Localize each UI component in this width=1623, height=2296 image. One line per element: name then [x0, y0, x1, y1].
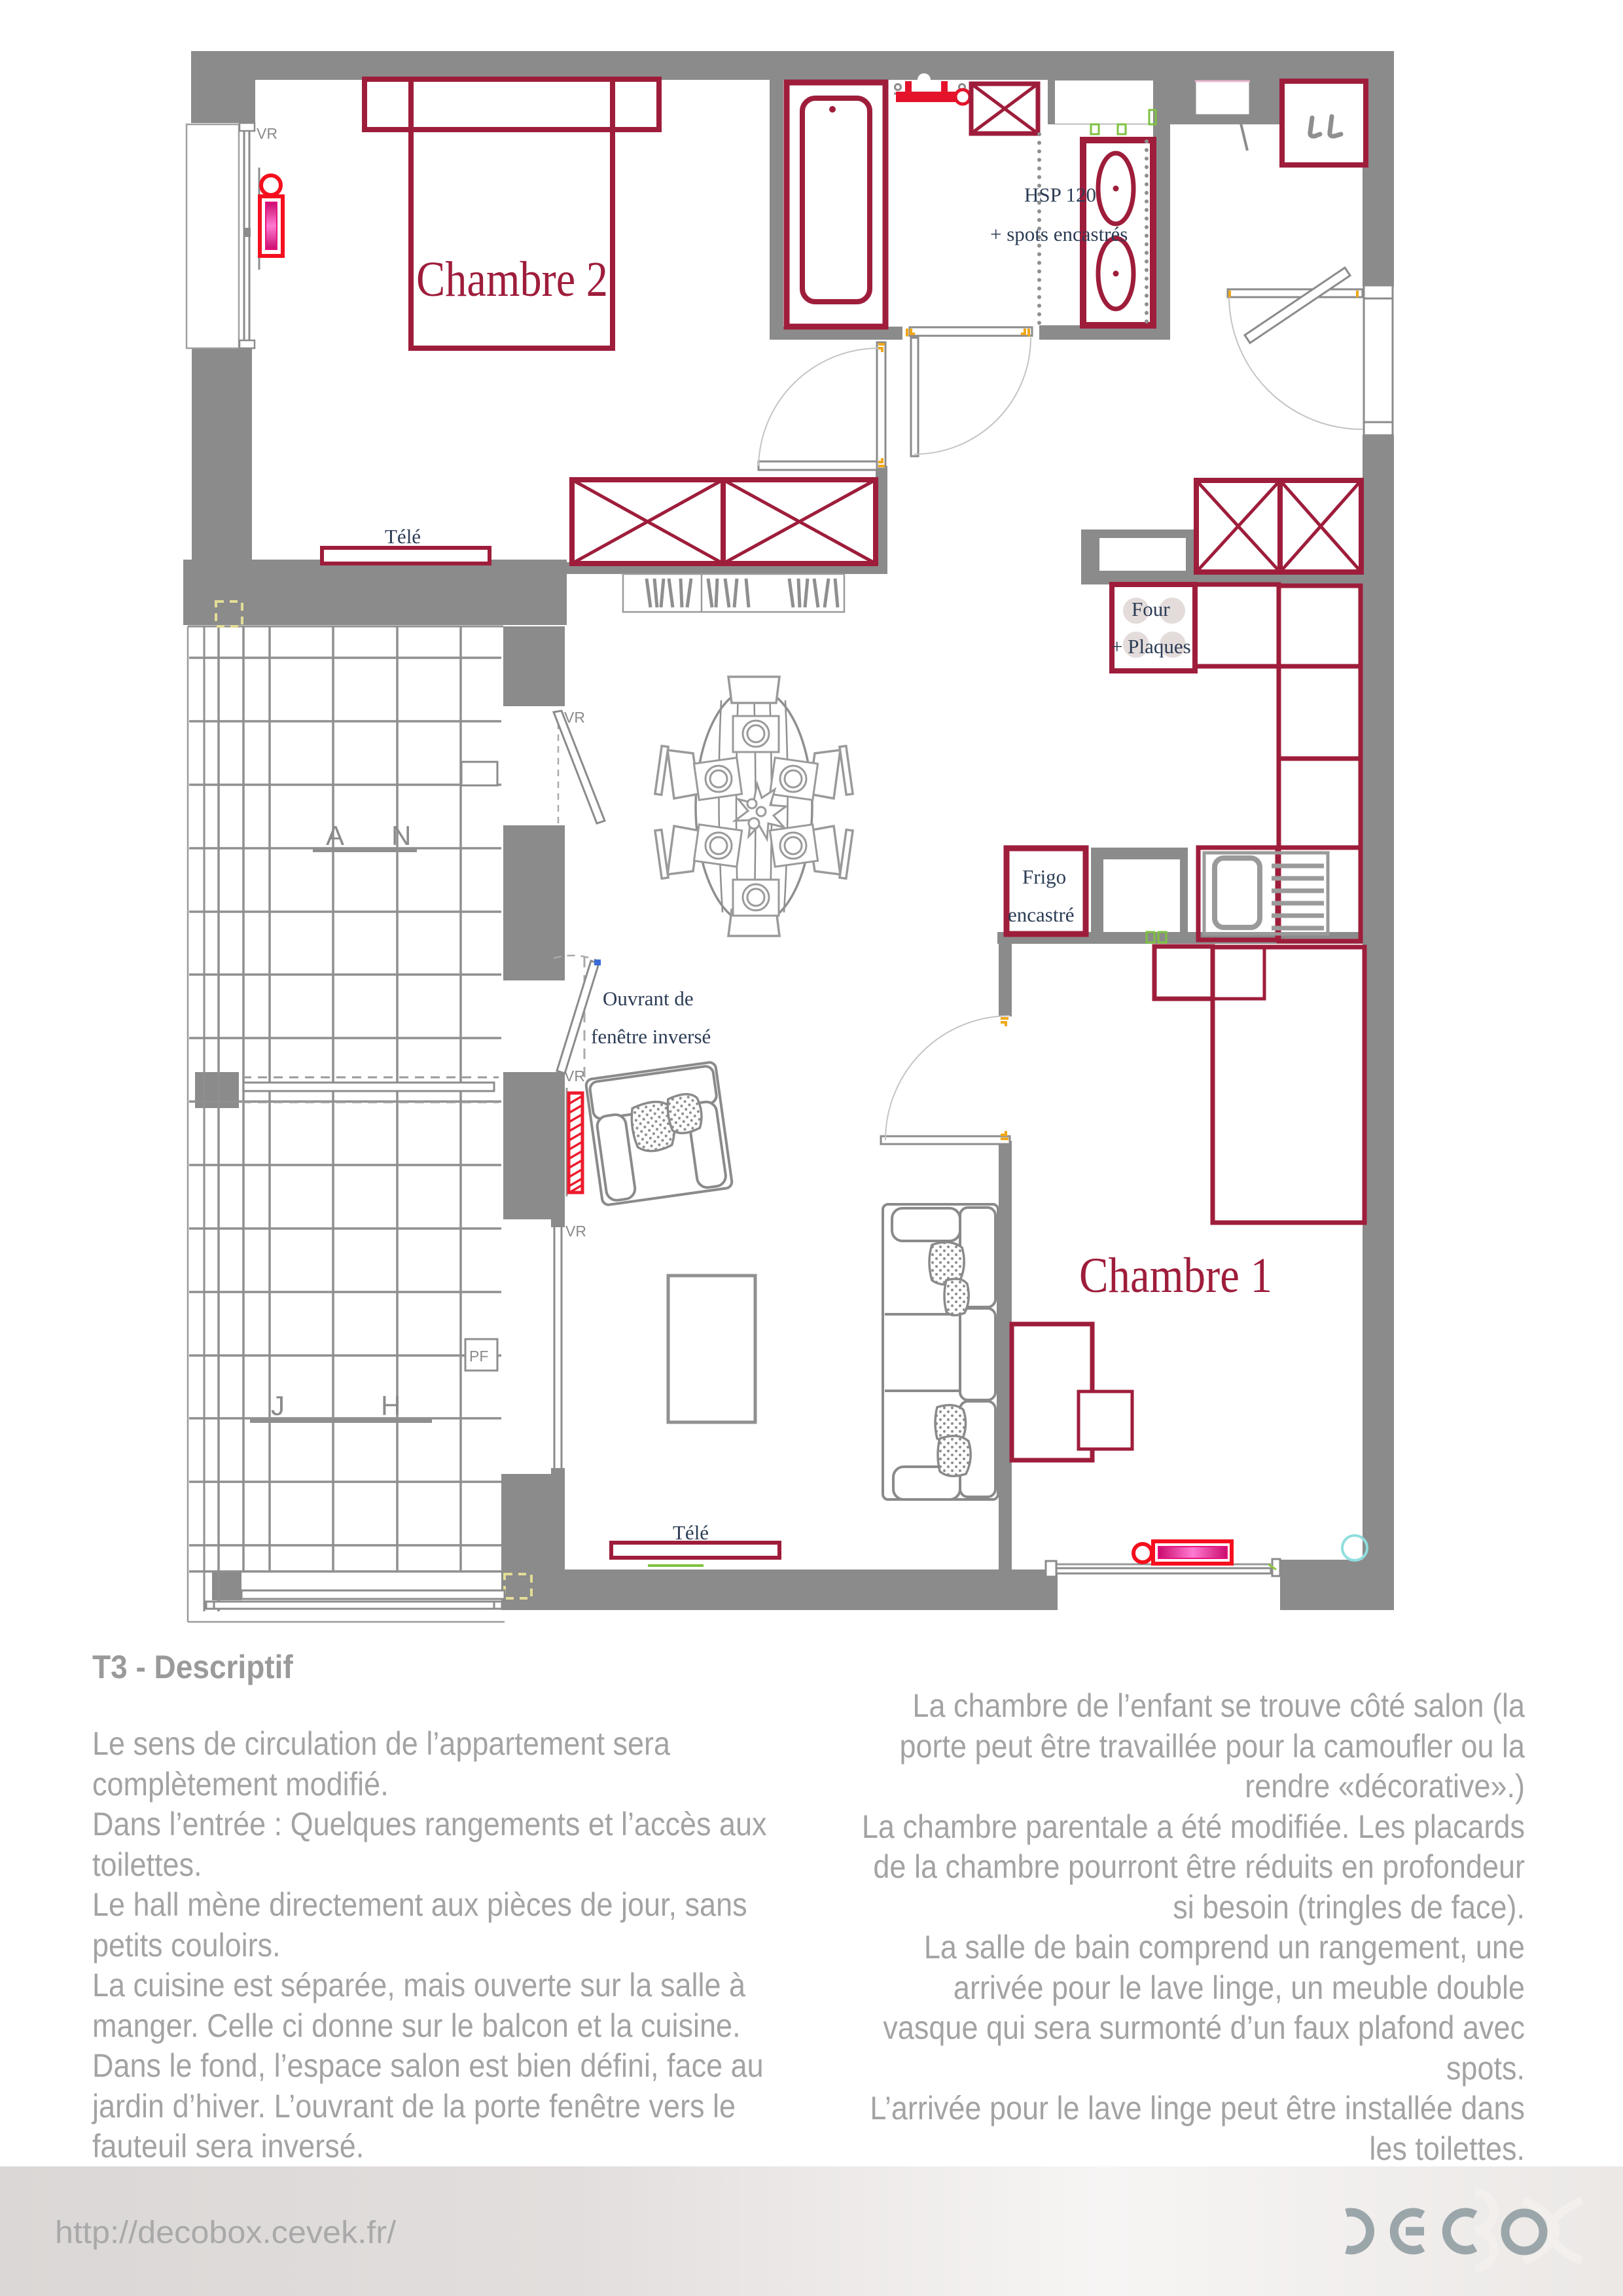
svg-text:+ spots encastrés: + spots encastrés — [990, 223, 1128, 245]
svg-text:VR: VR — [565, 1223, 586, 1240]
svg-text:N: N — [391, 820, 411, 851]
svg-text:Frigo: Frigo — [1022, 865, 1066, 888]
svg-text:VR: VR — [564, 709, 585, 726]
svg-text:Chambre 1: Chambre 1 — [1079, 1248, 1272, 1303]
svg-text:H: H — [381, 1390, 401, 1421]
svg-text:HSP 120: HSP 120 — [1024, 183, 1096, 206]
svg-text:fenêtre inversé: fenêtre inversé — [591, 1025, 711, 1048]
svg-text:Télé: Télé — [385, 525, 421, 548]
svg-text:A: A — [326, 820, 344, 851]
svg-text:encastré: encastré — [1008, 903, 1075, 926]
svg-text:J: J — [271, 1390, 285, 1421]
svg-text:Four: Four — [1132, 598, 1170, 620]
svg-text:VR: VR — [564, 1067, 585, 1085]
svg-text:PF: PF — [469, 1348, 488, 1365]
svg-text:VR: VR — [257, 125, 277, 142]
svg-text:Chambre 2: Chambre 2 — [416, 252, 608, 307]
svg-text:+ Plaques: + Plaques — [1111, 635, 1191, 658]
svg-text:Ouvrant de: Ouvrant de — [603, 987, 694, 1010]
svg-text:Télé: Télé — [673, 1521, 709, 1544]
